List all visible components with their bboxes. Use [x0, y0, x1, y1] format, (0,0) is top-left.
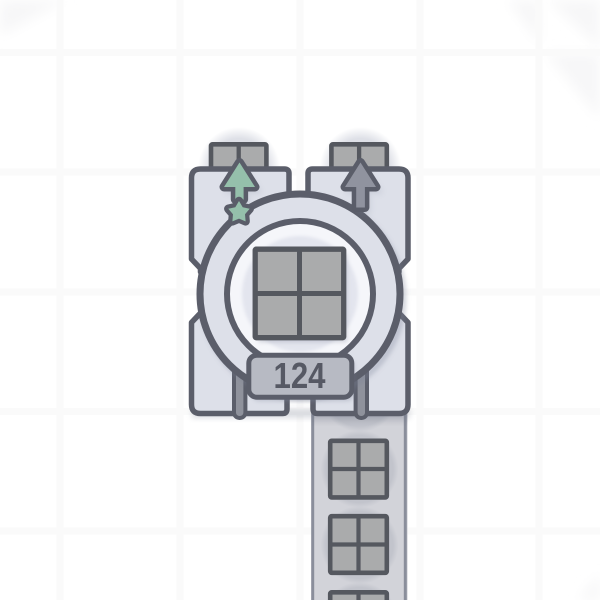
svg-text:124: 124 [274, 355, 326, 396]
